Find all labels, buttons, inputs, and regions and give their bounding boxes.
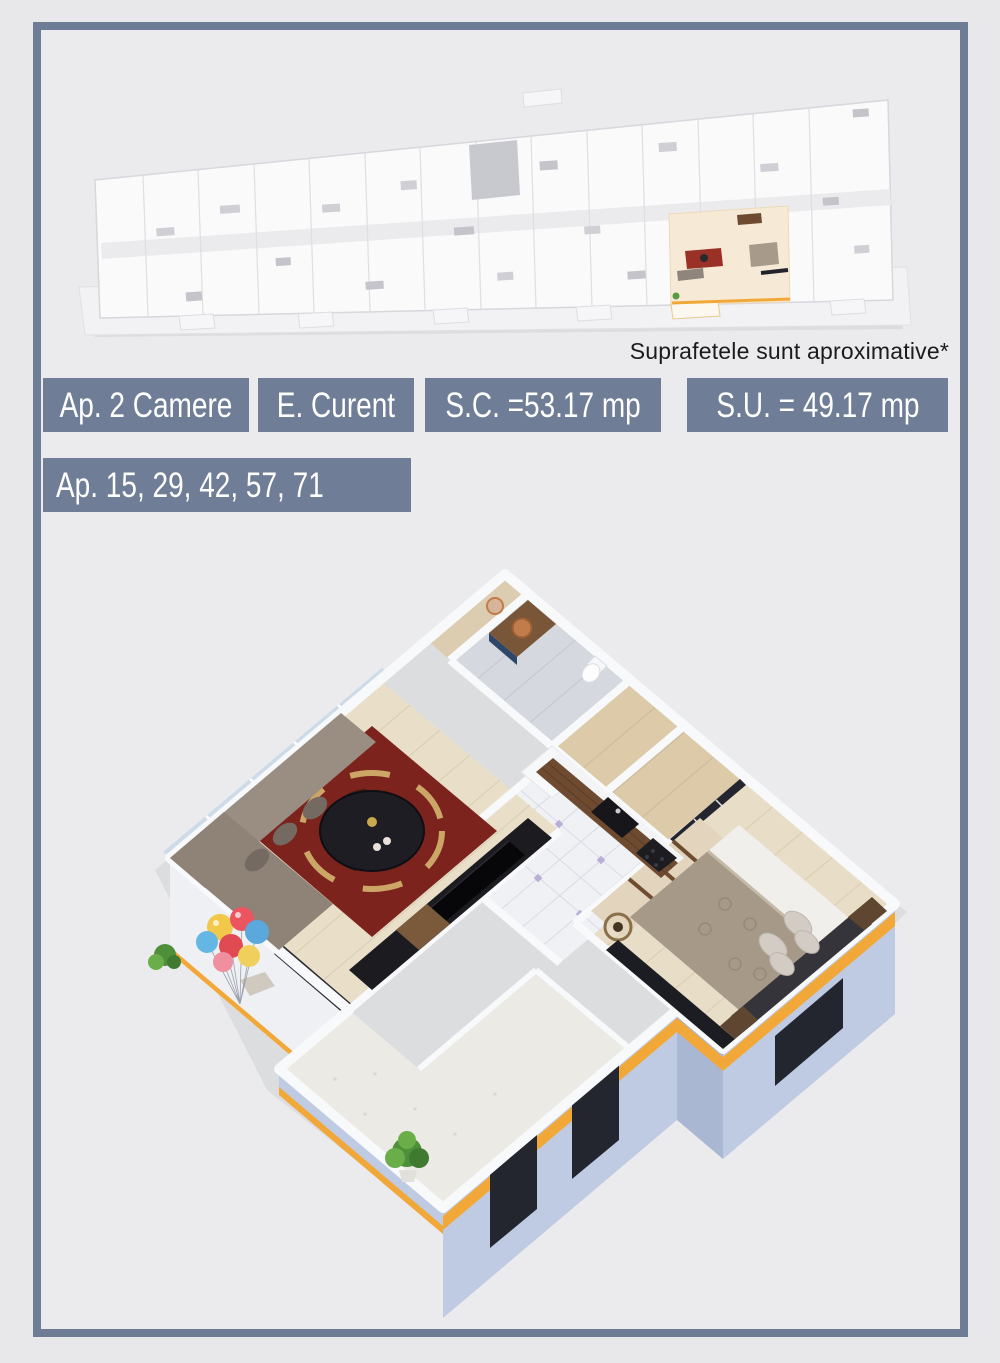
built-area-label: S.C. =53.17 mp [445, 388, 640, 423]
content-frame: Suprafetele sunt aproximative* Ap. 2 Cam… [33, 22, 968, 1337]
dining-table [320, 791, 424, 871]
building-floor-overview-render [61, 75, 927, 337]
bar-built-area: S.C. =53.17 mp [425, 378, 661, 432]
apartment-3d-render [75, 528, 935, 1324]
apartment-type-label: Ap. 2 Camere [60, 388, 233, 423]
bar-apartment-numbers: Ap. 15, 29, 42, 57, 71 [43, 458, 411, 512]
copper-sink [513, 619, 532, 638]
usable-area-label: S.U. = 49.17 mp [716, 388, 919, 423]
round-mirror [487, 598, 503, 614]
bar-stage: E. Curent [258, 378, 414, 432]
highlighted-unit [669, 206, 790, 319]
stage-label: E. Curent [277, 388, 395, 423]
apartment-numbers-label: Ap. 15, 29, 42, 57, 71 [56, 468, 324, 503]
bar-usable-area: S.U. = 49.17 mp [687, 378, 948, 432]
flyer-page: { "header": { "disclaimer": "Suprafetele… [0, 0, 1000, 1363]
disclaimer-note: Suprafetele sunt aproximative* [630, 338, 949, 365]
bar-apartment-type: Ap. 2 Camere [43, 378, 249, 432]
